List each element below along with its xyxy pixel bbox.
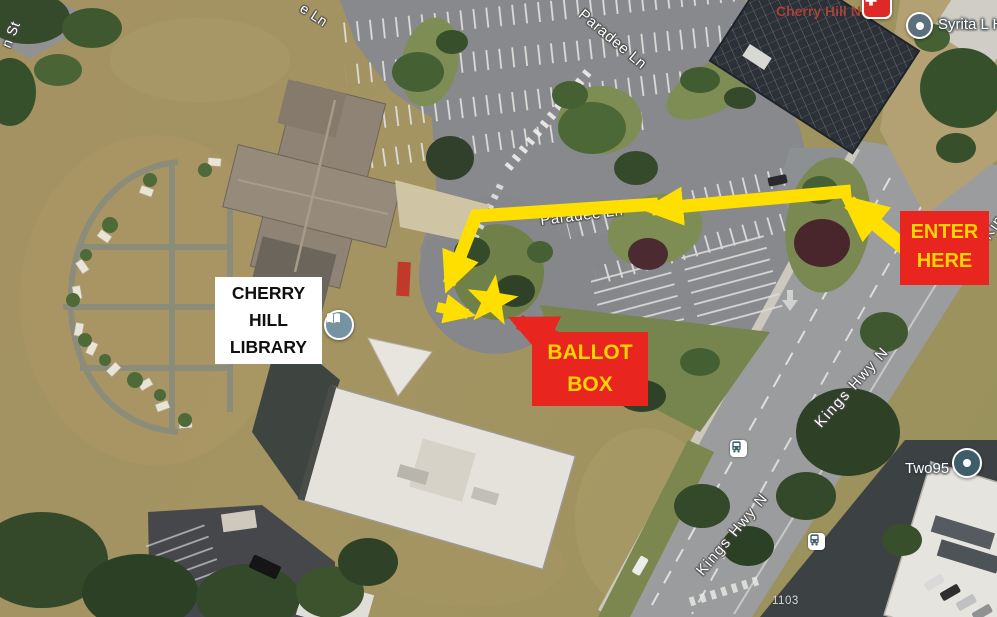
bus-stop-icon-upper[interactable] xyxy=(730,440,747,457)
cross-icon xyxy=(864,0,878,7)
book-icon xyxy=(326,312,341,325)
ballot-box-line1: BALLOT xyxy=(532,337,648,369)
enter-here-line1: ENTER xyxy=(900,218,989,247)
bus-icon xyxy=(730,440,743,453)
bus-icon xyxy=(808,533,821,546)
route-arrow-to-dropoff xyxy=(449,204,658,284)
cherry-hill-library-callout: CHERRY HILL LIBRARY xyxy=(215,277,322,364)
pin-dot xyxy=(916,22,924,30)
library-label-line2: HILL xyxy=(215,307,322,334)
library-label-line3: LIBRARY xyxy=(215,334,322,361)
enter-here-line2: HERE xyxy=(900,247,989,276)
library-place-pin[interactable] xyxy=(324,310,354,340)
library-label-line1: CHERRY xyxy=(215,280,322,307)
pin-dot xyxy=(963,459,971,467)
ballot-box-star xyxy=(464,271,522,326)
syrita-place-pin[interactable] xyxy=(906,12,933,39)
satellite-map-canvas[interactable]: n St e Ln Paradee Ln Paradee Ln Kings Hw… xyxy=(0,0,997,617)
enter-here-callout: ENTER HERE xyxy=(900,211,989,285)
route-arrow-to-star xyxy=(437,307,468,314)
medical-cross-pin[interactable] xyxy=(862,0,892,19)
route-annotation-layer xyxy=(0,0,997,617)
route-arrow-along-paradee xyxy=(652,191,851,209)
ballot-box-line2: BOX xyxy=(532,369,648,401)
ballot-box-callout: BALLOT BOX xyxy=(532,332,648,406)
bus-stop-icon-lower[interactable] xyxy=(808,533,825,550)
two95-place-pin[interactable] xyxy=(952,448,982,478)
